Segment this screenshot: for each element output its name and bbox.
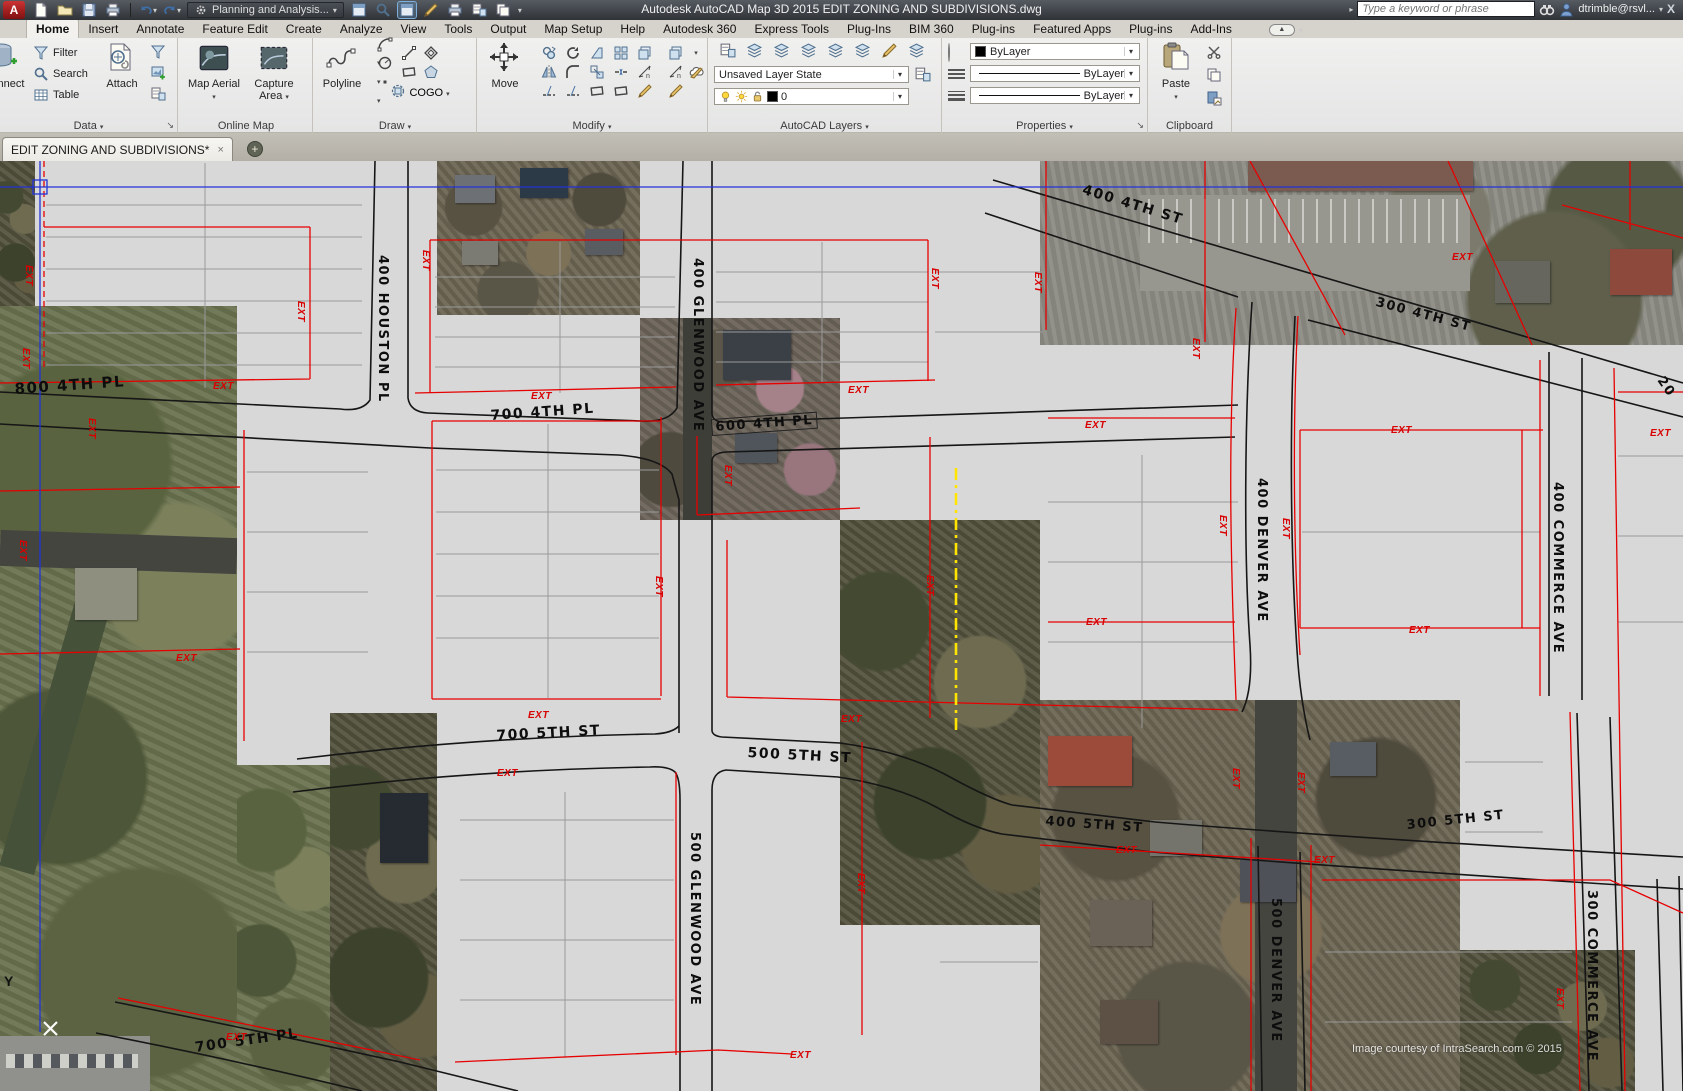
workspace-label: Planning and Analysis... — [212, 4, 329, 16]
polygon-icon[interactable] — [423, 64, 439, 80]
linetype-icon[interactable] — [948, 66, 965, 82]
autodesk-360-icon[interactable]: X — [1667, 2, 1683, 16]
revision-cloud-icon[interactable] — [688, 64, 704, 80]
properties-window-icon[interactable] — [398, 2, 416, 18]
explode-icon[interactable] — [637, 64, 653, 80]
street-label: 600 4TH PL — [712, 413, 817, 435]
bylayer-color-swatch — [975, 46, 986, 57]
ribbon-tab-output[interactable]: Output — [481, 20, 535, 38]
help-search-input[interactable] — [1357, 1, 1535, 17]
ribbon-tab-express-tools[interactable]: Express Tools — [745, 20, 837, 38]
minimize-ribbon-icon[interactable]: ▲ — [1269, 24, 1295, 36]
ribbon-panel-data: Connect Filter Search Table Attach Data … — [0, 38, 178, 133]
erase-icon[interactable] — [637, 83, 653, 99]
layer-dropdown[interactable]: 0▾ — [714, 88, 909, 105]
data-panel-label[interactable]: Data ▾ — [0, 120, 177, 132]
ext-marker: EXT — [722, 465, 733, 486]
ext-marker: EXT — [420, 250, 431, 271]
map-label-layer: 800 4TH PL700 4TH PL600 4TH PL400 HOUSTO… — [0, 161, 1683, 1091]
ribbon-panel-clipboard: Paste▾ Clipboard — [1148, 38, 1232, 133]
street-label: 500 GLENWOOD AVE — [687, 832, 702, 1006]
markup-icon[interactable] — [422, 2, 440, 18]
ribbon-panel-online-map: Map Aerial▾ CaptureArea ▾ Online Map — [180, 38, 313, 133]
draw-panel-label[interactable]: Draw ▾ — [314, 120, 476, 132]
search-binoculars-icon[interactable] — [1539, 1, 1555, 17]
ribbon-state-caret-icon[interactable]: ▾ — [1299, 26, 1303, 35]
layer-freeze-sun-icon[interactable] — [735, 90, 748, 103]
ext-marker: EXT — [1314, 855, 1335, 866]
image-insert-icon[interactable] — [150, 65, 166, 81]
street-label: 700 4TH PL — [490, 401, 595, 424]
ribbon-tab-tools[interactable]: Tools — [435, 20, 481, 38]
undo-icon[interactable]: ▾ — [139, 2, 157, 18]
lengthen-icon[interactable] — [541, 83, 557, 99]
layer-on-icon[interactable] — [854, 42, 871, 59]
ext-marker: EXT — [1190, 338, 1201, 359]
online-map-panel-label: Online Map — [180, 120, 312, 132]
ext-marker: EXT — [17, 540, 28, 561]
layer-state-manager-icon[interactable] — [914, 66, 931, 83]
ext-marker: EXT — [213, 381, 234, 392]
filter-button[interactable]: Filter — [33, 44, 88, 61]
street-label: 20 — [1654, 374, 1678, 400]
street-label: 300 4TH ST — [1374, 295, 1473, 335]
street-label: 300 COMMERCE AVE — [1584, 890, 1599, 1062]
ext-marker: EXT — [531, 391, 552, 402]
ext-marker: EXT — [528, 710, 549, 721]
ext-marker: EXT — [176, 653, 197, 664]
ribbon-tab-map-setup[interactable]: Map Setup — [535, 20, 611, 38]
paste-icon — [1159, 41, 1193, 77]
mirror-icon[interactable] — [541, 64, 557, 80]
ext-marker: EXT — [1116, 845, 1137, 856]
ext-marker: EXT — [790, 1050, 811, 1061]
street-label: 400 GLENWOOD AVE — [690, 258, 705, 432]
street-label: 800 4TH PL — [14, 372, 126, 398]
layer-on-bulb-icon[interactable] — [719, 90, 732, 103]
street-label: 400 COMMERCE AVE — [1550, 482, 1565, 654]
ribbon: Connect Filter Search Table Attach Data … — [0, 38, 1683, 133]
edit-poly-icon[interactable] — [589, 83, 605, 99]
ext-marker: EXT — [1032, 272, 1043, 293]
sheet-set-icon[interactable] — [350, 2, 368, 18]
user-menu-caret-icon[interactable]: ▾ — [1659, 5, 1663, 14]
plot-printer-icon[interactable] — [104, 2, 122, 18]
ribbon-tab-create[interactable]: Create — [277, 20, 331, 38]
paste-button[interactable]: Paste▾ — [1150, 41, 1202, 102]
draw-order-stack-icon[interactable] — [668, 45, 684, 61]
layers-panel-label[interactable]: AutoCAD Layers ▾ — [708, 120, 941, 132]
new-tab-button[interactable]: + — [247, 141, 263, 157]
ext-marker: EXT — [1280, 518, 1291, 539]
ext-marker: EXT — [1650, 428, 1671, 439]
layer-properties-icon[interactable] — [719, 42, 736, 59]
qat-overflow-icon[interactable]: ▾ — [518, 6, 522, 15]
user-person-icon[interactable] — [1559, 2, 1574, 17]
imagery-watermark: Image courtesy of IntraSearch.com © 2015 — [1352, 1043, 1562, 1055]
measure-angle-icon[interactable] — [668, 64, 684, 80]
object-color-dropdown[interactable]: ByLayer▾ — [970, 43, 1140, 60]
title-bar: A ▾ ▾ Planning and Analysis... ▾ ▾ Autod… — [0, 0, 1683, 20]
ext-marker: EXT — [924, 575, 935, 596]
window-title: Autodesk AutoCAD Map 3D 2015 EDIT ZONING… — [641, 2, 1042, 16]
line-icon[interactable] — [401, 45, 417, 61]
ext-marker: EXT — [1085, 420, 1106, 431]
filter-icon — [33, 45, 49, 61]
table-icon — [33, 87, 49, 103]
ext-marker: EXT — [855, 873, 866, 894]
ext-marker: EXT — [226, 1032, 247, 1043]
copy-clip-icon[interactable] — [1206, 67, 1222, 83]
scale-icon[interactable] — [589, 64, 605, 80]
ext-marker: EXT — [1217, 515, 1228, 536]
layer-lock-icon[interactable] — [751, 90, 764, 103]
move-icon — [488, 41, 522, 77]
copy-icon[interactable] — [541, 45, 557, 61]
street-label: 500 5TH ST — [747, 745, 852, 766]
workspace-gear-icon — [194, 3, 208, 17]
attach-button[interactable]: Attach — [96, 41, 148, 90]
text-edit-icon[interactable] — [494, 2, 512, 18]
cogo-icon[interactable]: COGO ▾ — [390, 83, 449, 99]
ext-marker: EXT — [1230, 768, 1241, 789]
fillet-icon[interactable] — [565, 64, 581, 80]
properties-panel-label[interactable]: Properties ▾ — [942, 120, 1147, 132]
ribbon-tab-help[interactable]: Help — [611, 20, 654, 38]
polyline-button[interactable]: Polyline — [316, 41, 368, 90]
ribbon-tab-bim-360[interactable]: BIM 360 — [900, 20, 963, 38]
connect-button[interactable]: Connect — [0, 41, 30, 90]
ribbon-tab-featured-apps[interactable]: Featured Apps — [1024, 20, 1120, 38]
layer-previous-icon[interactable] — [908, 42, 925, 59]
trim-icon[interactable] — [589, 45, 605, 61]
layout-list-icon[interactable] — [470, 2, 488, 18]
query-edit-icon[interactable] — [150, 44, 166, 60]
ribbon-tab-plug-ins[interactable]: Plug-ins — [963, 20, 1024, 38]
paste-special-icon[interactable] — [1206, 90, 1222, 106]
document-tab-title: EDIT ZONING AND SUBDIVISIONS* — [11, 143, 209, 157]
ext-marker: EXT — [1452, 252, 1473, 263]
ribbon-tab-annotate[interactable]: Annotate — [127, 20, 193, 38]
ext-marker: EXT — [848, 385, 869, 396]
application-menu-button[interactable]: A — [3, 1, 25, 19]
ribbon-tab-add-ins[interactable]: Add-Ins — [1181, 20, 1240, 38]
ext-marker: EXT — [1295, 772, 1306, 793]
map-aerial-button[interactable]: Map Aerial▾ — [188, 41, 240, 102]
ext-marker: EXT — [1409, 625, 1430, 636]
street-label: 500 DENVER AVE — [1268, 898, 1283, 1043]
lineweight-dropdown[interactable]: ByLayer▾ — [970, 87, 1140, 104]
capture-area-icon — [257, 41, 291, 77]
layer-freeze-icon[interactable] — [773, 42, 790, 59]
preview-icon[interactable] — [374, 2, 392, 18]
publish-icon[interactable] — [446, 2, 464, 18]
rectangle-icon[interactable] — [401, 64, 417, 80]
ribbon-tab-plug-ins[interactable]: Plug-ins — [1120, 20, 1181, 38]
open-folder-icon[interactable] — [56, 2, 74, 18]
map-viewport[interactable]: 800 4TH PL700 4TH PL600 4TH PL400 HOUSTO… — [0, 161, 1683, 1091]
region-diamond-icon[interactable] — [423, 45, 439, 61]
ext-marker: EXT — [929, 268, 940, 289]
linetype-dropdown[interactable]: ByLayer▾ — [970, 65, 1140, 82]
quick-access-toolbar: ▾ ▾ Planning and Analysis... ▾ ▾ — [28, 2, 526, 18]
redo-icon[interactable]: ▾ — [163, 2, 181, 18]
ribbon-tab-bar: HomeInsertAnnotateFeature EditCreateAnal… — [0, 20, 1683, 38]
ribbon-tab-plug-ins[interactable]: Plug-Ins — [838, 20, 900, 38]
ext-marker: EXT — [20, 348, 31, 369]
image-manage-icon[interactable] — [150, 86, 166, 102]
layer-state-dropdown[interactable]: Unsaved Layer State▾ — [714, 66, 909, 83]
ribbon-tab-feature-edit[interactable]: Feature Edit — [193, 20, 276, 38]
document-tab[interactable]: EDIT ZONING AND SUBDIVISIONS* × — [2, 137, 233, 161]
layer-thaw-icon[interactable] — [827, 42, 844, 59]
workspace-switcher[interactable]: Planning and Analysis... ▾ — [187, 2, 344, 18]
ext-marker: EXT — [1086, 617, 1107, 628]
layer-color-swatch[interactable] — [767, 91, 778, 102]
cut-scissors-icon[interactable] — [1206, 44, 1222, 60]
layer-off-icon[interactable] — [800, 42, 817, 59]
polyline-icon — [325, 41, 359, 77]
draw-order-icon[interactable] — [637, 45, 653, 61]
close-tab-icon[interactable]: × — [217, 144, 223, 156]
document-tab-bar: EDIT ZONING AND SUBDIVISIONS* × + — [0, 133, 1683, 161]
ribbon-panel-autocad-layers: Unsaved Layer State▾ 0▾ AutoCAD Layers ▾ — [708, 38, 942, 133]
search-history-icon[interactable]: ▸ — [1349, 5, 1353, 14]
break-icon[interactable] — [613, 64, 629, 80]
properties-panel-launcher-icon[interactable]: ↘ — [1136, 120, 1144, 131]
ribbon-panel-modify: Move ▾ Modify ▾ — [477, 38, 708, 133]
ribbon-tab-autodesk-360[interactable]: Autodesk 360 — [654, 20, 745, 38]
ext-marker: EXT — [86, 418, 97, 439]
new-file-icon[interactable] — [32, 2, 50, 18]
table-button[interactable]: Table — [33, 86, 88, 103]
street-label: 300 5TH ST — [1406, 808, 1505, 833]
modify-panel-label[interactable]: Modify ▾ — [477, 120, 707, 132]
layer-isolate-icon[interactable] — [746, 42, 763, 59]
edit-hatch-icon[interactable] — [613, 83, 629, 99]
save-icon[interactable] — [80, 2, 98, 18]
color-wheel-icon[interactable] — [948, 44, 950, 62]
ribbon-tab-home[interactable]: Home — [26, 19, 79, 38]
stretch-icon[interactable] — [565, 83, 581, 99]
capture-area-button[interactable]: CaptureArea ▾ — [248, 41, 300, 102]
rotate-icon[interactable] — [565, 45, 581, 61]
ext-marker: EXT — [841, 714, 862, 725]
clipboard-panel-label: Clipboard — [1148, 120, 1231, 132]
street-label: 400 DENVER AVE — [1254, 478, 1269, 623]
search-button[interactable]: Search — [33, 65, 88, 82]
signed-in-user[interactable]: dtrimble@rsvl... — [1578, 3, 1655, 15]
map-aerial-icon — [197, 41, 231, 77]
street-label: 400 HOUSTON PL — [375, 255, 390, 403]
ext-marker: EXT — [1391, 425, 1412, 436]
ext-marker: EXT — [295, 301, 306, 322]
ext-marker: EXT — [497, 768, 518, 779]
lineweight-icon[interactable] — [948, 88, 965, 104]
street-label: 400 4TH ST — [1080, 182, 1185, 228]
ribbon-panel-properties: ByLayer▾ ByLayer▾ ByLayer▾ Properties ▾ … — [942, 38, 1148, 133]
move-button[interactable]: Move — [479, 41, 531, 90]
ext-marker: EXT — [23, 265, 34, 286]
ribbon-panel-draw: Polyline ▾ ▾ ▾ COGO ▾ Draw ▾ — [314, 38, 477, 133]
array-icon[interactable] — [613, 45, 629, 61]
draw-order-caret-icon[interactable]: ▾ — [694, 49, 698, 57]
ribbon-tab-insert[interactable]: Insert — [79, 20, 127, 38]
data-panel-launcher-icon[interactable]: ↘ — [166, 120, 174, 131]
connect-icon — [0, 41, 21, 77]
street-label: 400 5TH ST — [1045, 814, 1144, 836]
street-label: 700 5TH ST — [496, 723, 601, 744]
ribbon-tab-view[interactable]: View — [392, 20, 436, 38]
attach-icon — [105, 41, 139, 77]
ext-marker: EXT — [653, 576, 664, 597]
ucs-y-axis-label: Y — [4, 973, 13, 989]
sketch-brush-icon[interactable] — [668, 83, 684, 99]
search-icon — [33, 66, 49, 82]
layer-match-icon[interactable] — [881, 42, 898, 59]
ext-marker: EXT — [1554, 988, 1565, 1009]
